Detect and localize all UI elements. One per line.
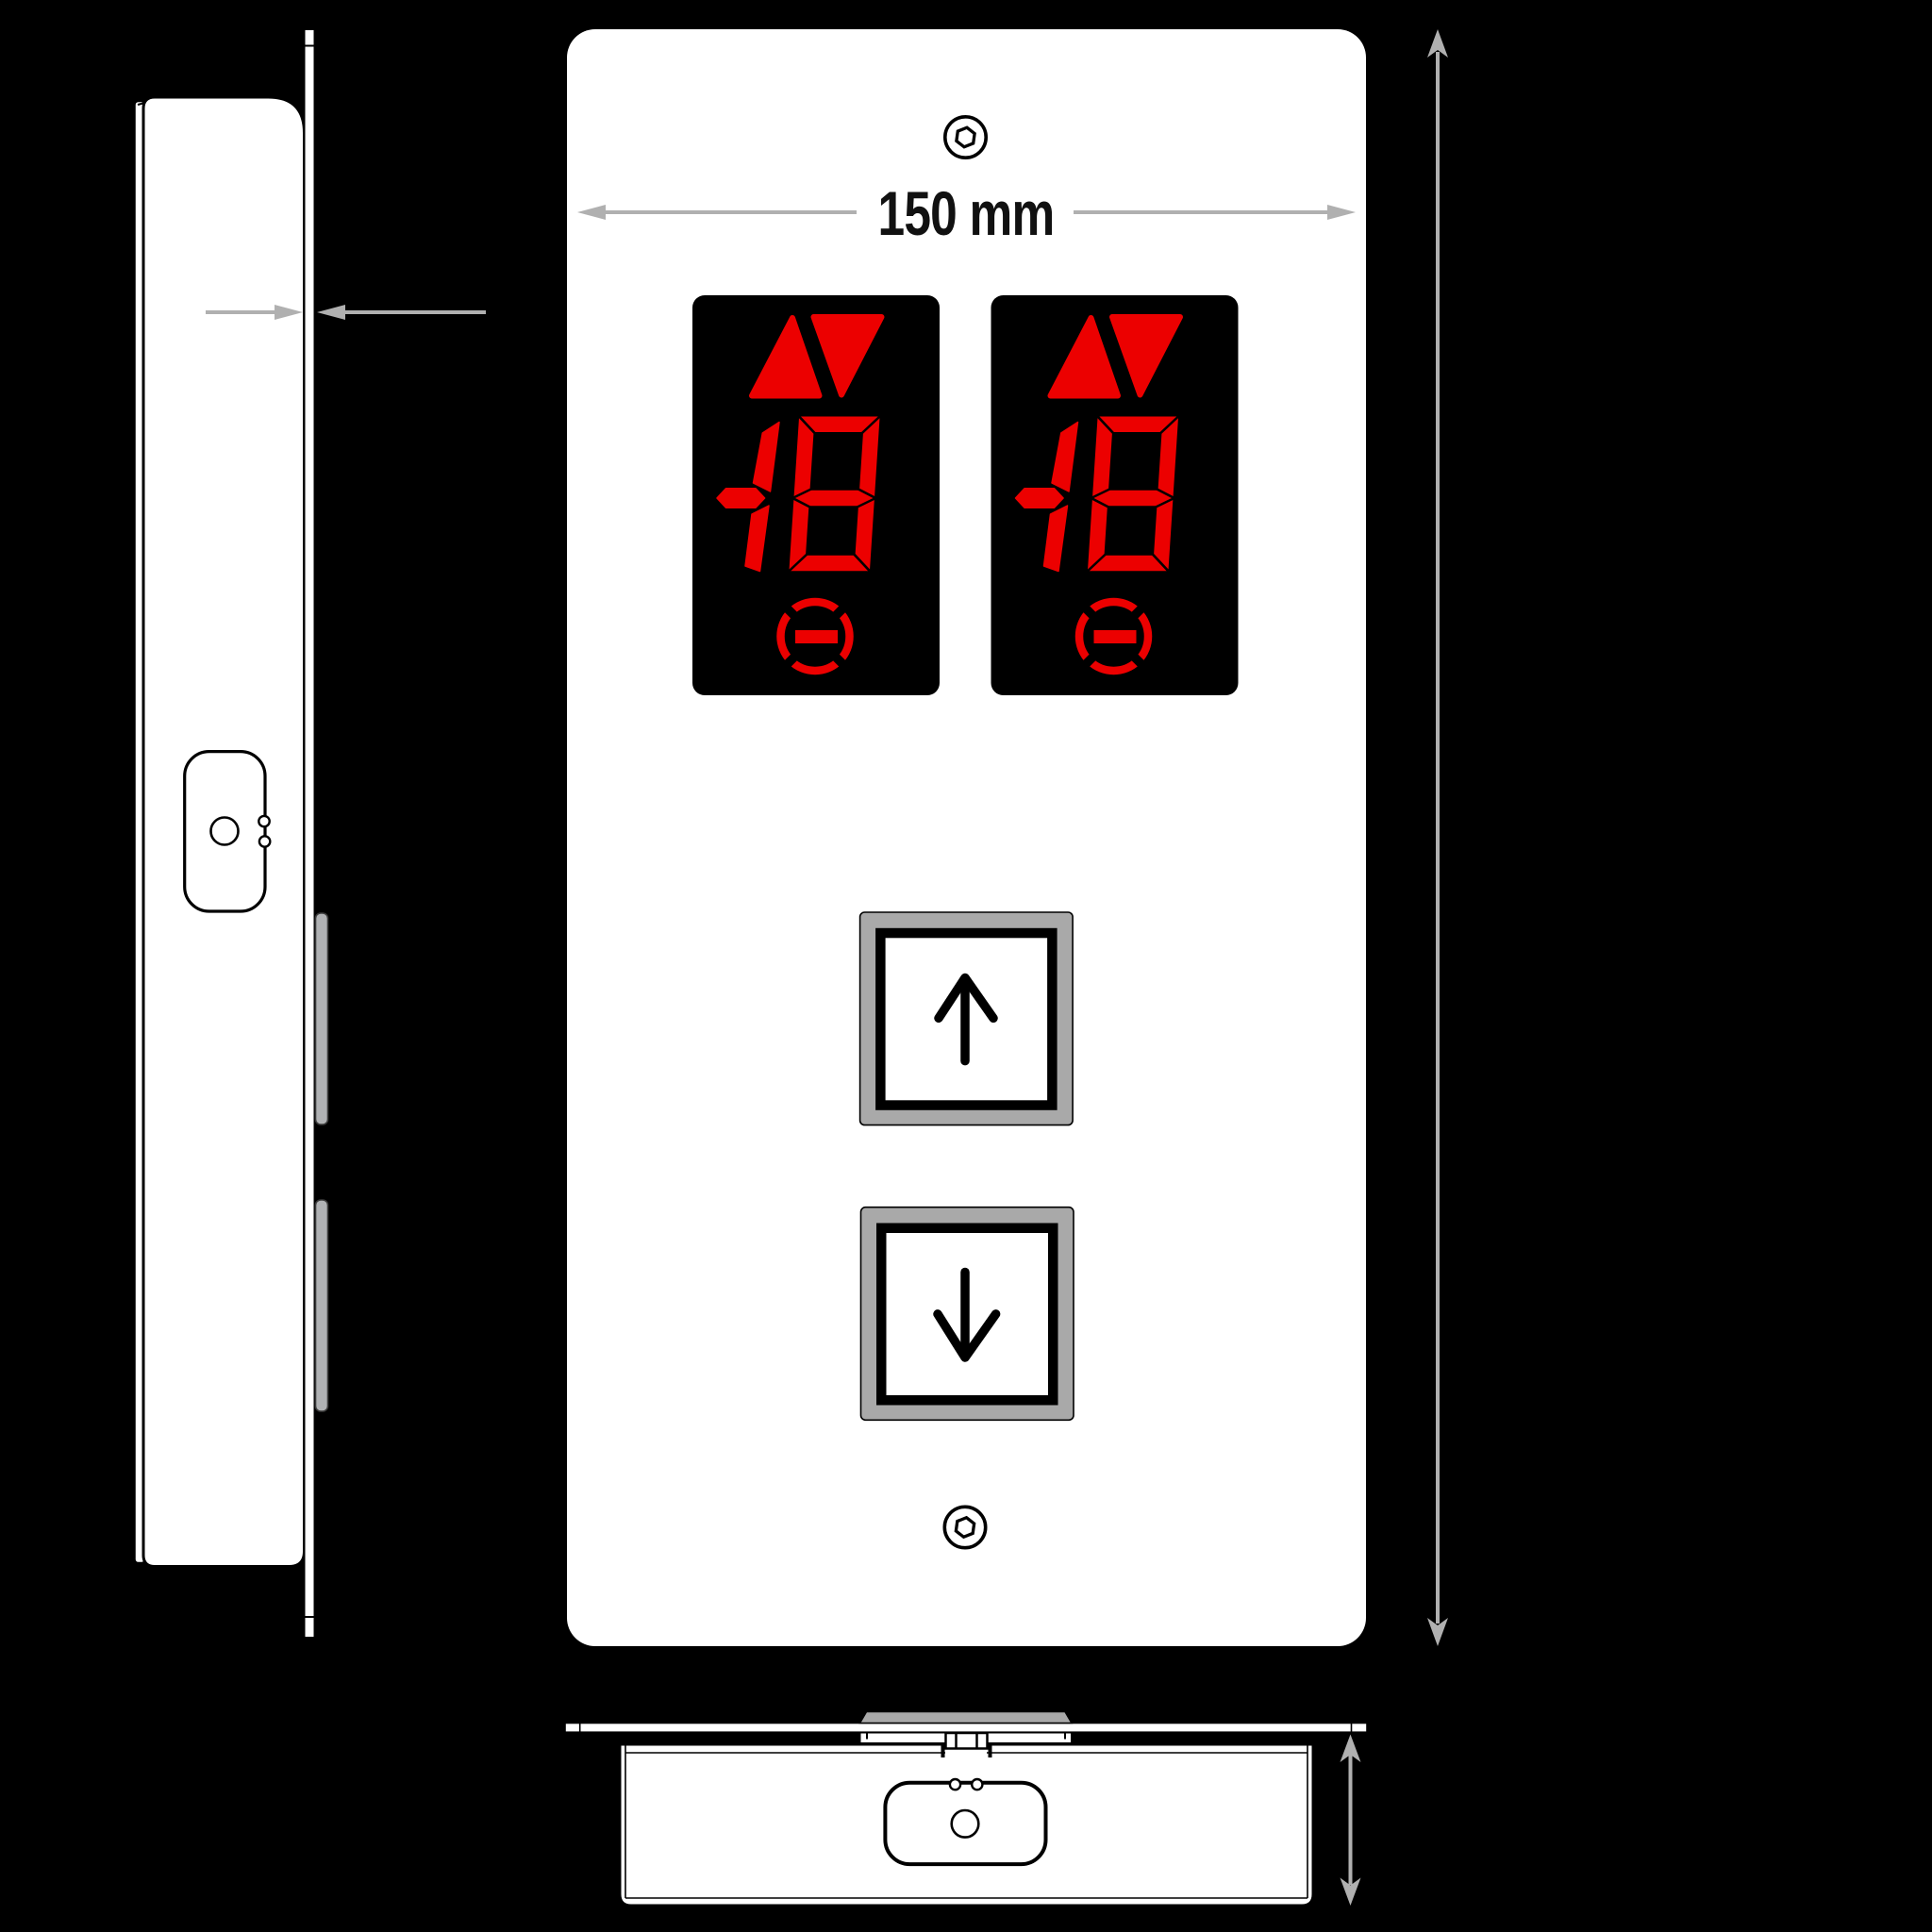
svg-text:150 mm: 150 mm xyxy=(877,178,1054,249)
